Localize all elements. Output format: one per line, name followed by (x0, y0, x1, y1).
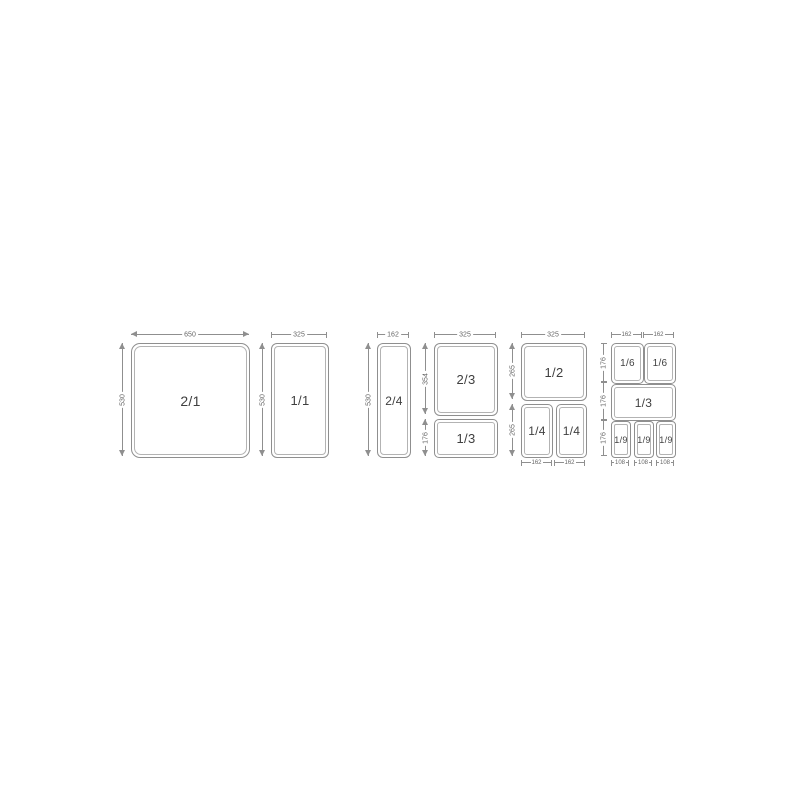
dim-height-1-1: 530 (258, 343, 268, 456)
dim-bottom-1-9-c: 108 (656, 458, 674, 468)
dim-label: 325 (457, 332, 473, 339)
dim-label: 325 (545, 332, 561, 339)
dim-height-row3: 176 (599, 420, 609, 456)
dim-label: 162 (530, 460, 542, 466)
pan-1-9-b-label: 1/9 (637, 435, 650, 445)
dim-width-2-1: 650 (131, 330, 249, 340)
dim-label: 354 (423, 371, 430, 387)
pan-1-9-c: 1/9 (656, 421, 676, 458)
dim-label: 176 (601, 430, 608, 446)
pan-1-4-right-label: 1/4 (563, 424, 581, 438)
dim-height-row2: 176 (599, 382, 609, 420)
pan-2-4: 2/4 (377, 343, 411, 458)
dim-bottom-1-4-left: 162 (521, 458, 552, 468)
dim-width-1-6-right: 162 (643, 330, 674, 340)
pan-2-3-label: 2/3 (457, 372, 476, 387)
dim-label: 176 (423, 430, 430, 446)
pan-1-2: 1/2 (521, 343, 587, 401)
dim-label: 530 (120, 392, 127, 408)
dim-label: 108 (637, 460, 649, 466)
dim-label: 162 (563, 460, 575, 466)
pan-1-4-right: 1/4 (556, 404, 587, 458)
pan-1-3-horizontal: 1/3 (611, 384, 676, 421)
dim-height-1-2: 265 (508, 343, 518, 399)
dim-label: 650 (182, 332, 198, 339)
dim-label: 530 (260, 392, 267, 408)
dim-width-p4: 325 (434, 330, 496, 340)
product-image-canvas: 650 530 2/1 325 530 1/1 162 530 (0, 0, 800, 800)
pan-1-6-left: 1/6 (611, 343, 644, 384)
dim-bottom-1-9-a: 108 (611, 458, 629, 468)
pan-1-1: 1/1 (271, 343, 329, 458)
pan-1-9-a: 1/9 (611, 421, 631, 458)
pan-2-1: 2/1 (131, 343, 250, 458)
pan-1-3-horizontal-label: 1/3 (635, 396, 653, 410)
dim-width-p5: 325 (521, 330, 585, 340)
pan-2-4-label: 2/4 (385, 394, 403, 408)
pan-1-6-left-label: 1/6 (620, 358, 635, 369)
pan-1-4-left-label: 1/4 (528, 424, 546, 438)
pan-1-3: 1/3 (434, 419, 498, 458)
pan-1-4-left: 1/4 (521, 404, 553, 458)
dim-bottom-1-9-b: 108 (634, 458, 652, 468)
dim-label: 176 (601, 393, 608, 409)
dim-label: 162 (620, 332, 632, 338)
dim-width-1-6-left: 162 (611, 330, 642, 340)
dim-label: 176 (601, 355, 608, 371)
dim-label: 162 (652, 332, 664, 338)
dim-label: 108 (614, 460, 626, 466)
pan-2-3: 2/3 (434, 343, 498, 416)
dim-label: 162 (385, 332, 401, 339)
pan-1-2-label: 1/2 (545, 365, 564, 380)
pan-1-9-b: 1/9 (634, 421, 654, 458)
dim-label: 265 (510, 422, 517, 438)
dim-height-1-3: 176 (421, 419, 431, 456)
pan-1-3-label: 1/3 (457, 431, 476, 446)
dim-height-2-1: 530 (118, 343, 128, 456)
dim-label: 325 (291, 332, 307, 339)
dim-height-2-4: 530 (364, 343, 374, 456)
dim-label: 530 (366, 392, 373, 408)
dim-height-row1: 176 (599, 343, 609, 382)
dim-bottom-1-4-right: 162 (554, 458, 585, 468)
pan-2-1-label: 2/1 (180, 393, 200, 409)
pan-1-6-right: 1/6 (644, 343, 676, 384)
pan-1-1-label: 1/1 (291, 393, 310, 408)
dim-label: 265 (510, 363, 517, 379)
dim-width-2-4: 162 (377, 330, 409, 340)
pan-1-6-right-label: 1/6 (653, 358, 668, 369)
dim-width-1-1: 325 (271, 330, 327, 340)
dim-height-1-4: 265 (508, 404, 518, 456)
dim-label: 108 (659, 460, 671, 466)
pan-1-9-a-label: 1/9 (614, 435, 627, 445)
pan-1-9-c-label: 1/9 (659, 435, 672, 445)
dim-height-2-3: 354 (421, 343, 431, 414)
